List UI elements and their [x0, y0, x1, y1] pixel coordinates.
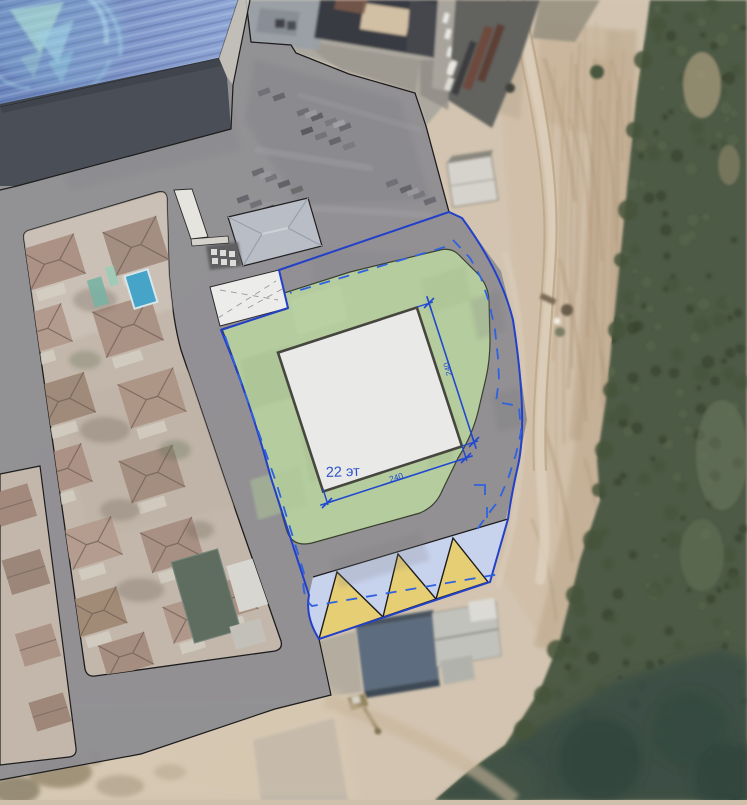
svg-text:22 эт: 22 эт — [326, 464, 361, 481]
